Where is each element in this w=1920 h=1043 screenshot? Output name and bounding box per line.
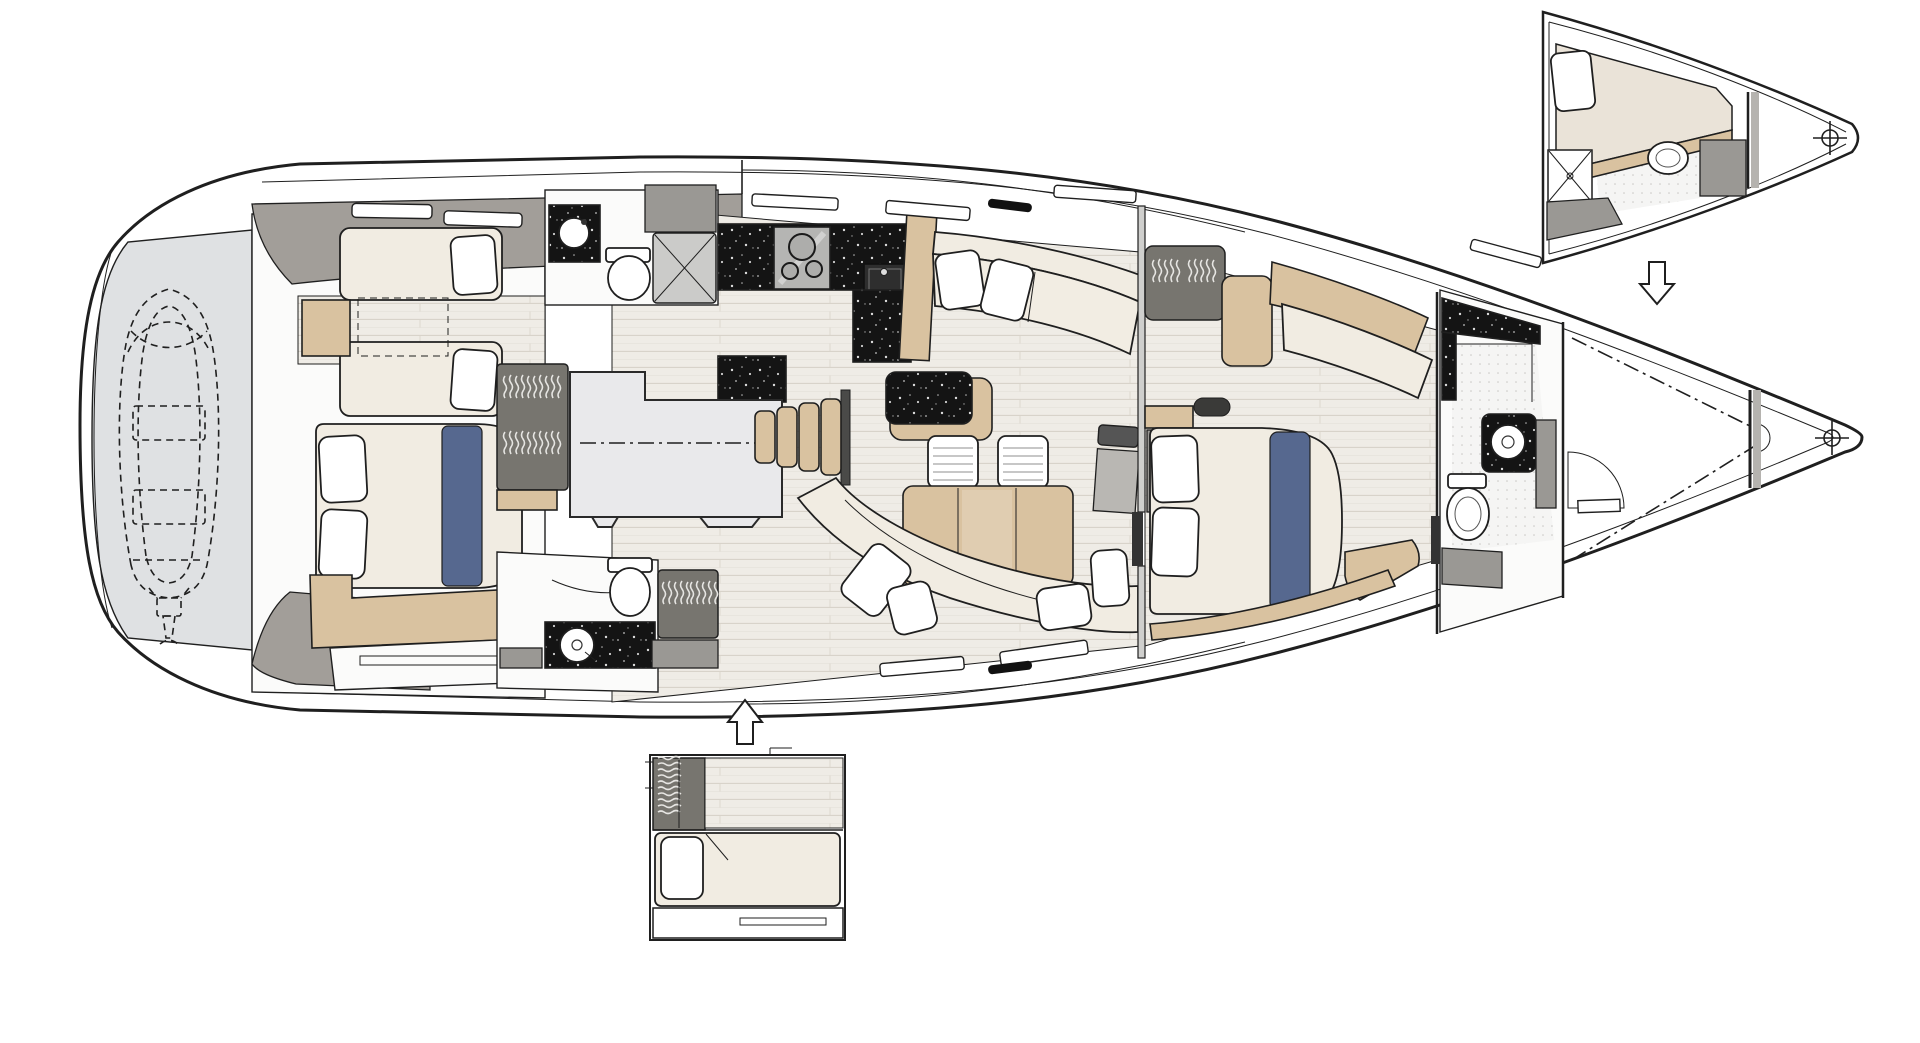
pillow	[934, 249, 985, 311]
toilet	[608, 558, 652, 616]
inset-bow-crosshair-icon	[1813, 121, 1847, 155]
toilet	[1447, 474, 1489, 540]
inset-single-berth	[655, 833, 840, 906]
inset-shower-tray	[1548, 150, 1592, 202]
wardrobe-shelf	[1222, 276, 1272, 366]
head-cabinet	[1536, 420, 1556, 508]
pillow	[661, 837, 703, 899]
walkin-lockers	[497, 364, 568, 510]
deck-hatch	[1470, 239, 1542, 268]
head-door-panel	[1442, 548, 1502, 588]
cabin-door	[1132, 512, 1143, 566]
toilet	[606, 248, 650, 300]
pillow	[1035, 583, 1092, 632]
washbasin	[1491, 425, 1525, 459]
tv-panel	[1098, 425, 1139, 448]
vanity-desk	[1145, 406, 1193, 428]
pillow	[318, 509, 367, 579]
forward-head	[1431, 290, 1563, 634]
cabin-fitting	[1194, 398, 1230, 416]
coachroof-window	[752, 194, 839, 210]
bed-runner	[1270, 432, 1310, 610]
fridge-cabinet	[645, 185, 716, 232]
pillow	[1151, 435, 1199, 503]
pillow	[1550, 50, 1596, 112]
coachroof-window	[886, 200, 971, 220]
media-cabinet	[1093, 449, 1139, 514]
washbasin	[560, 628, 594, 662]
deck-plan-canvas	[0, 0, 1920, 1043]
inset-bow-alternative	[1543, 12, 1858, 263]
shower-wall	[1442, 332, 1456, 400]
stool	[998, 436, 1048, 488]
inset-aft-alternative	[645, 748, 845, 940]
inset-washbasin	[1648, 142, 1688, 174]
island-double-bed	[1150, 428, 1342, 614]
inset-hanging-locker	[653, 757, 705, 831]
stove	[774, 227, 830, 289]
inset-drawer	[653, 908, 843, 938]
inset-floor-panel	[1547, 198, 1622, 240]
shower-tray	[653, 233, 716, 303]
nightstand	[302, 300, 350, 356]
locker-shelf	[497, 490, 557, 510]
pillow	[318, 435, 367, 503]
door-step	[1578, 499, 1620, 512]
bath-mat	[500, 648, 542, 668]
inset-floor-strip	[705, 758, 843, 828]
cleat	[988, 198, 1033, 212]
inset-cabinet	[1700, 140, 1746, 196]
bed-runner	[442, 426, 482, 586]
pillow	[1151, 507, 1199, 577]
deck-plan-page	[0, 0, 1920, 1043]
aft-galley-counter	[718, 356, 786, 402]
pillow	[1090, 549, 1130, 607]
hull-window	[444, 211, 522, 228]
pillow	[450, 235, 498, 296]
head-door	[1431, 516, 1440, 564]
stool	[928, 436, 978, 488]
hull-window	[352, 203, 432, 218]
bulkhead-shadow	[1753, 390, 1761, 488]
hanging-locker	[652, 570, 718, 668]
peninsula-counter	[886, 372, 972, 424]
up-arrow-icon	[728, 700, 762, 744]
hanging-wardrobe	[1145, 246, 1225, 320]
pillow	[450, 349, 498, 412]
down-arrow-icon	[1640, 262, 1674, 304]
